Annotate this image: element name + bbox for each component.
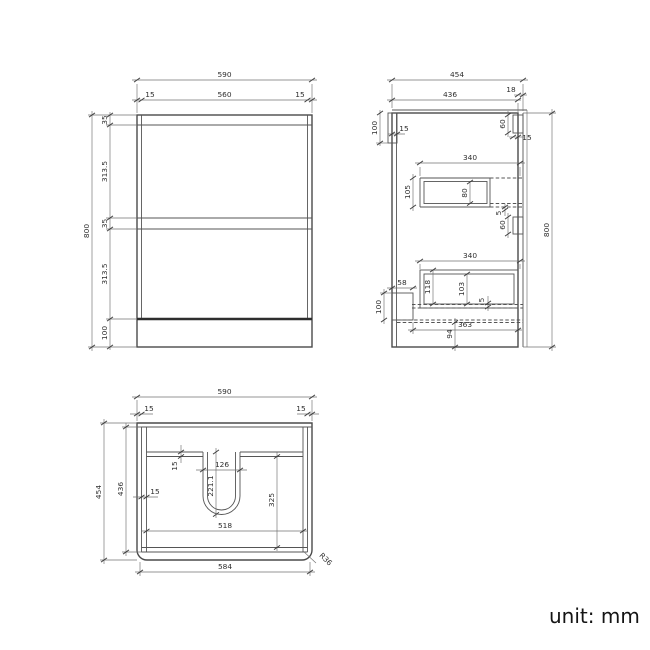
plan-dim-front-width: 584 [218,562,232,571]
front-dim-drawer2: 313.5 [100,263,109,284]
plan-dim-overall-depth: 454 [94,485,103,499]
drawing-page: 590 15 560 15 800 35 313.5 35 [0,0,650,650]
side-dim-top-recess-depth: 15 [522,133,532,142]
side-dim-rail-height: 100 [370,121,379,135]
front-dim-side-gap-right: 15 [295,90,305,99]
plan-dim-overall-width: 590 [217,387,231,396]
plan-dim-side-thickness: 15 [150,487,160,496]
front-dim-top-rail: 35 [100,115,109,125]
front-dim-drawer1: 313.5 [100,161,109,182]
plan-dim-rail-thickness: 15 [170,461,179,471]
plan-dim-overhang-left: 15 [144,404,154,413]
side-dim-bottom-depth: 363 [458,320,472,329]
side-dim-drawer2-height: 118 [423,280,432,294]
side-dim-rail-thickness: 15 [399,124,409,133]
technical-drawing: 590 15 560 15 800 35 313.5 35 [0,0,650,650]
plan-dim-overhang-right: 15 [296,404,306,413]
plan-dim-cutout-width: 126 [215,460,229,469]
side-dim-drawer1-height: 105 [403,185,412,199]
side-dim-bottom-clearance: 94 [445,329,454,339]
front-dim-front-width: 560 [217,90,231,99]
front-dim-overall-width: 590 [217,70,231,79]
side-dim-mid-recess-height: 60 [498,220,507,230]
side-dim-overall-height: 800 [542,223,551,237]
plan-dim-cutout-depth: 221.1 [206,475,215,496]
front-dim-overall-height: 800 [82,224,91,238]
side-dim-notch-depth: 58 [397,278,407,287]
side-dim-overall-depth: 454 [450,70,464,79]
front-dim-kick: 100 [100,326,109,340]
side-dim-carcass-depth: 436 [443,90,457,99]
side-dim-front-panel: 18 [506,85,516,94]
front-dim-gap: 35 [100,219,109,229]
side-dim-drawer1-clearance: 5 [494,210,503,215]
plan-dim-inner-width: 518 [218,521,232,530]
side-dim-drawer1-inner: 80 [460,188,469,198]
plan-dim-inner-depth: 325 [267,493,276,507]
plan-dim-carcass-depth: 436 [116,482,125,496]
side-dim-drawer2-clearance: 5 [477,297,486,302]
side-dim-drawer2-depth: 340 [463,251,477,260]
side-dim-drawer2-inner: 103 [457,282,466,296]
side-dim-drawer1-depth: 340 [463,153,477,162]
side-dim-notch-height: 100 [374,300,383,314]
front-dim-side-gap-left: 15 [145,90,155,99]
unit-note: unit: mm [549,604,640,628]
side-dim-top-recess-height: 60 [498,119,507,129]
